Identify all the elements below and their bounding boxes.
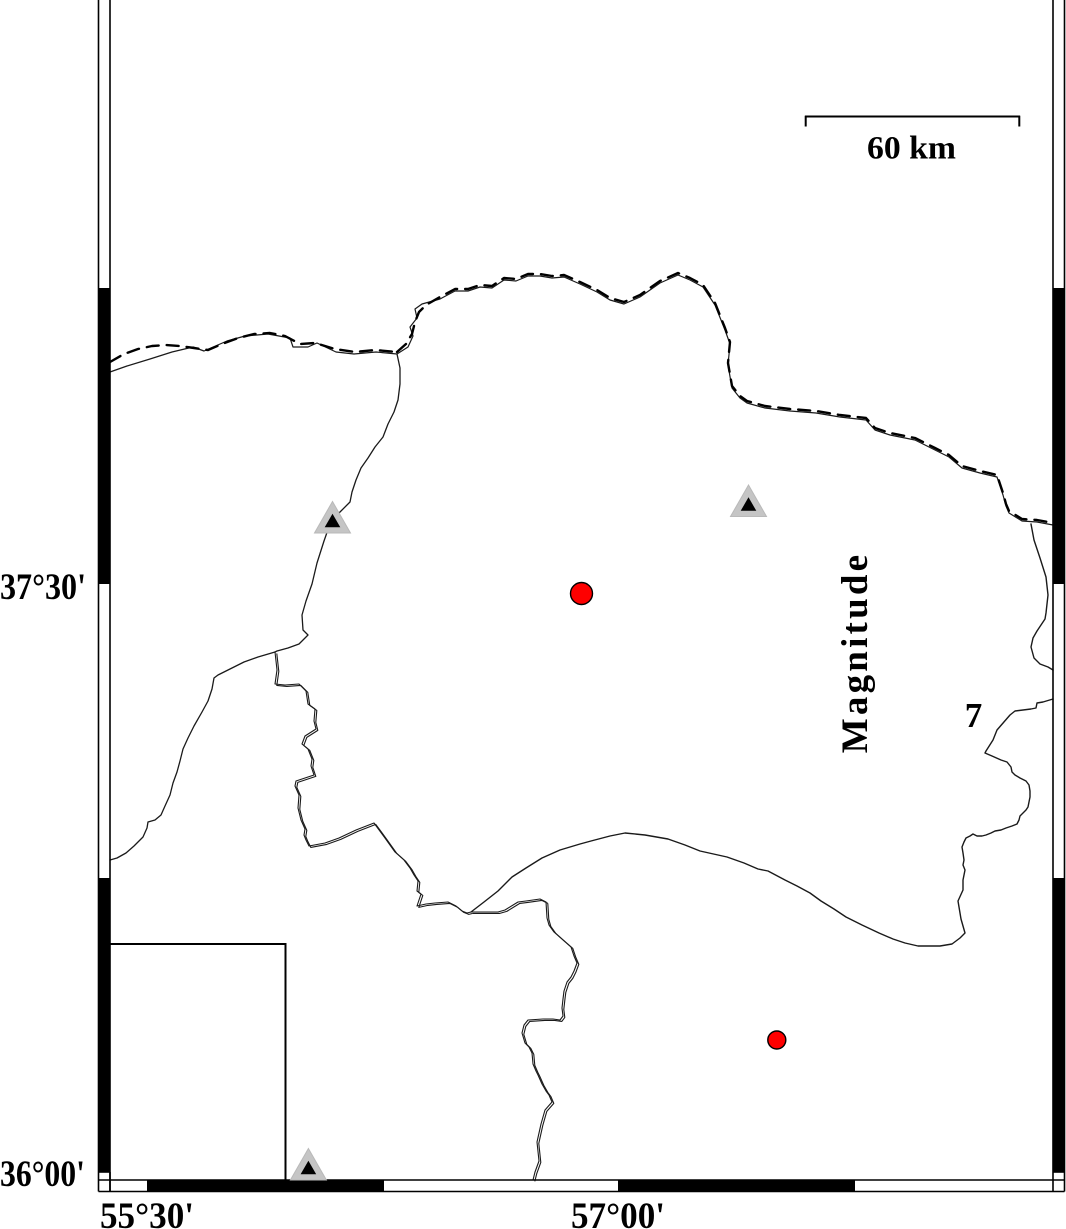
svg-text:7: 7	[965, 696, 983, 735]
svg-text:36°00': 36°00'	[0, 1154, 85, 1195]
svg-text:57°00': 57°00'	[571, 1196, 665, 1229]
svg-text:60 km: 60 km	[867, 131, 956, 167]
svg-text:37°30': 37°30'	[0, 567, 86, 608]
svg-text:Magnitude: Magnitude	[835, 552, 876, 753]
svg-text:55°30': 55°30'	[100, 1196, 194, 1229]
